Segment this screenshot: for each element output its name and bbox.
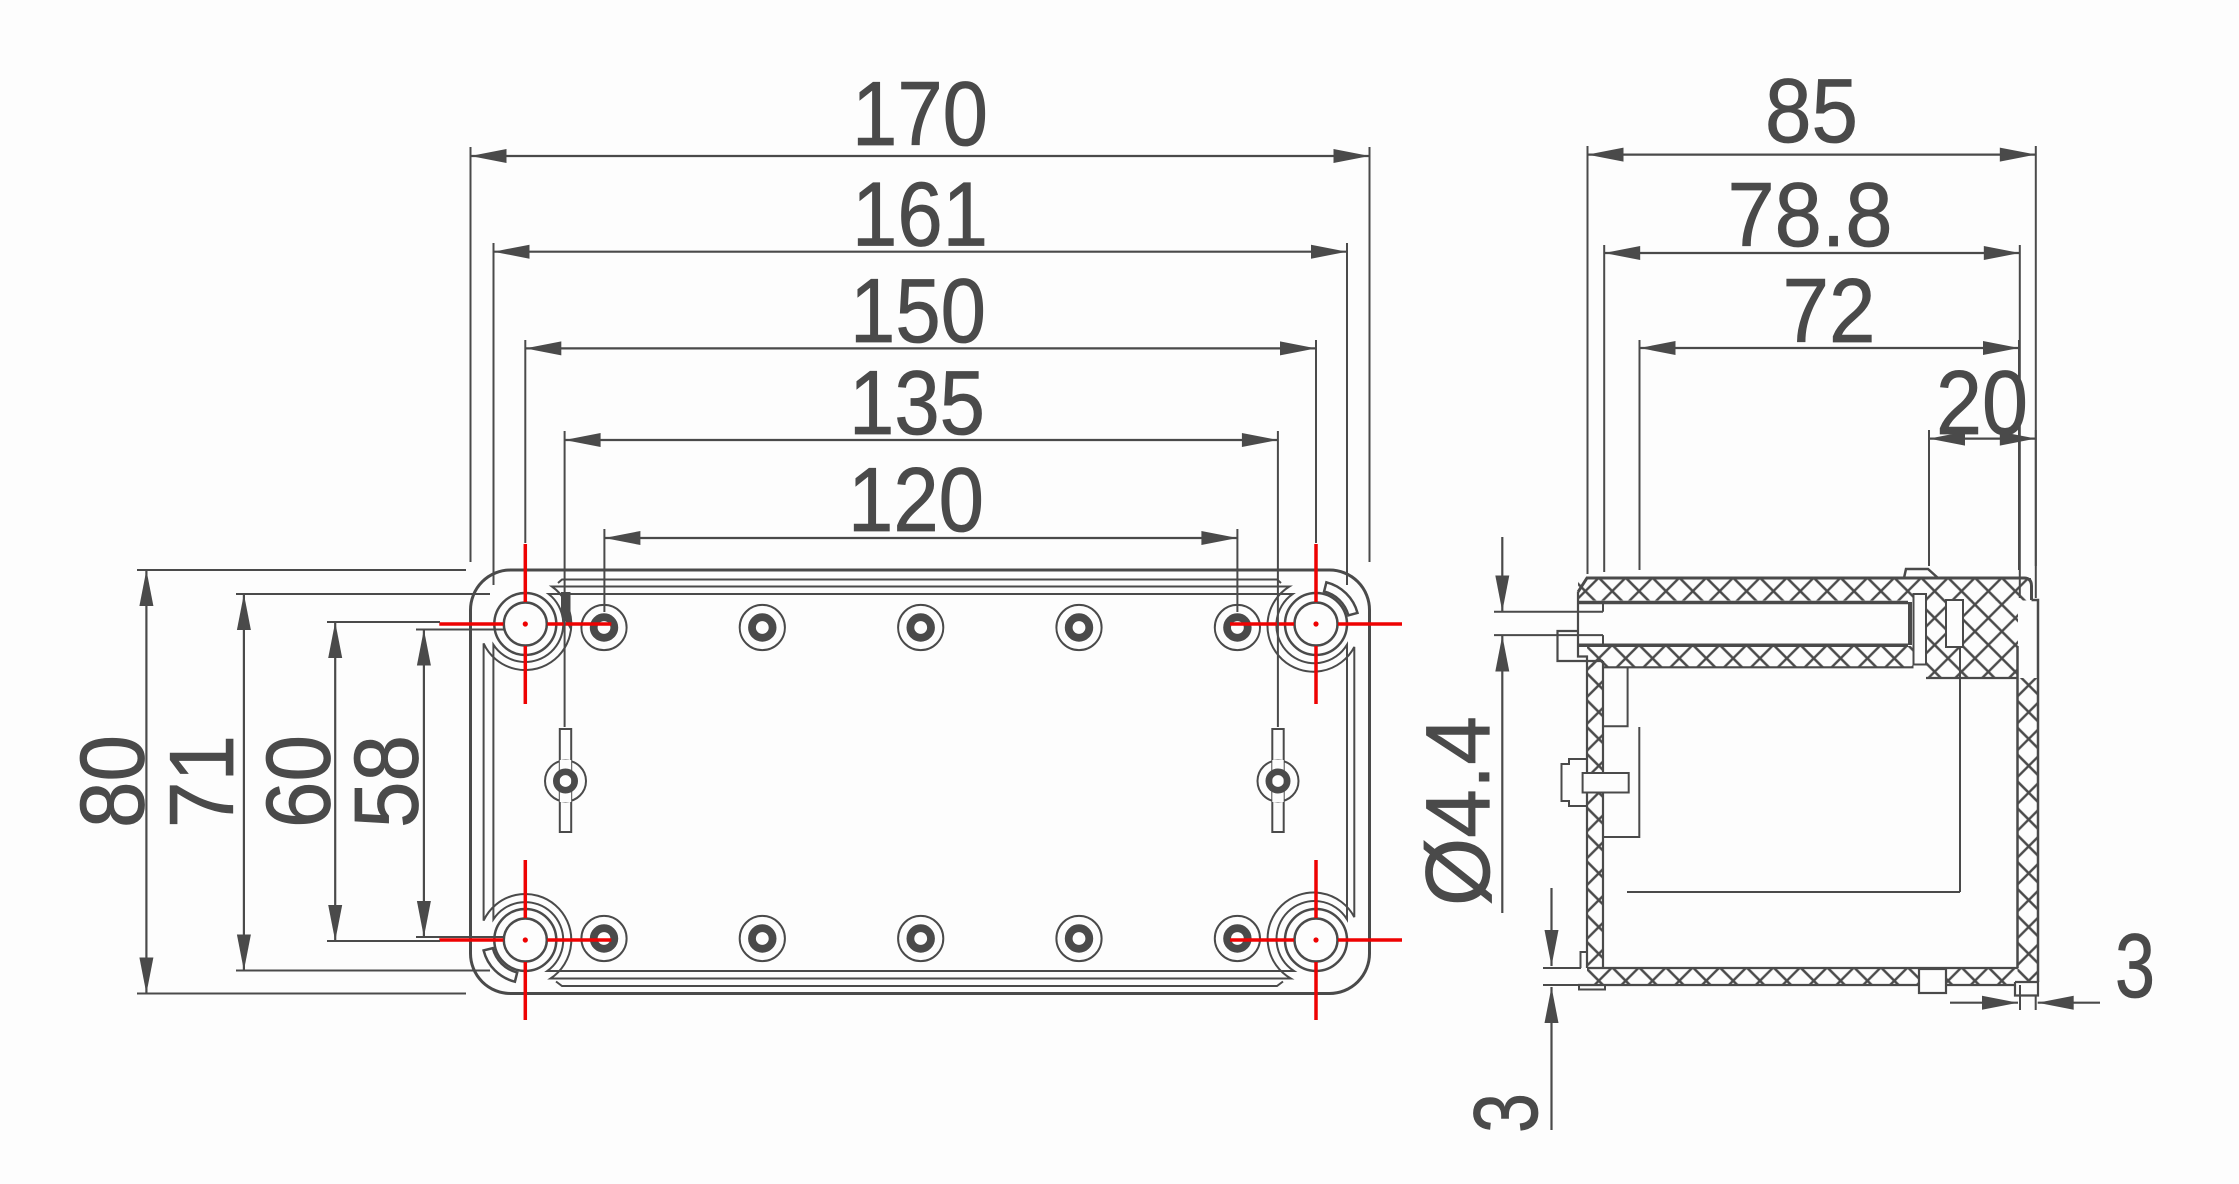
svg-text:58: 58 [337,735,438,828]
svg-text:161: 161 [852,165,988,266]
svg-text:85: 85 [1765,61,1858,162]
svg-text:Ø4.4: Ø4.4 [1408,716,1509,906]
svg-text:120: 120 [848,450,984,551]
svg-text:71: 71 [152,735,253,828]
svg-text:135: 135 [849,353,985,454]
svg-text:60: 60 [249,735,350,828]
svg-text:170: 170 [852,64,988,165]
svg-text:78.8: 78.8 [1728,165,1893,266]
svg-text:72: 72 [1783,261,1876,362]
svg-text:80: 80 [63,735,164,828]
svg-text:150: 150 [850,261,986,362]
svg-text:3: 3 [1456,1093,1557,1133]
svg-text:20: 20 [1936,353,2028,454]
svg-text:3: 3 [2115,916,2155,1017]
